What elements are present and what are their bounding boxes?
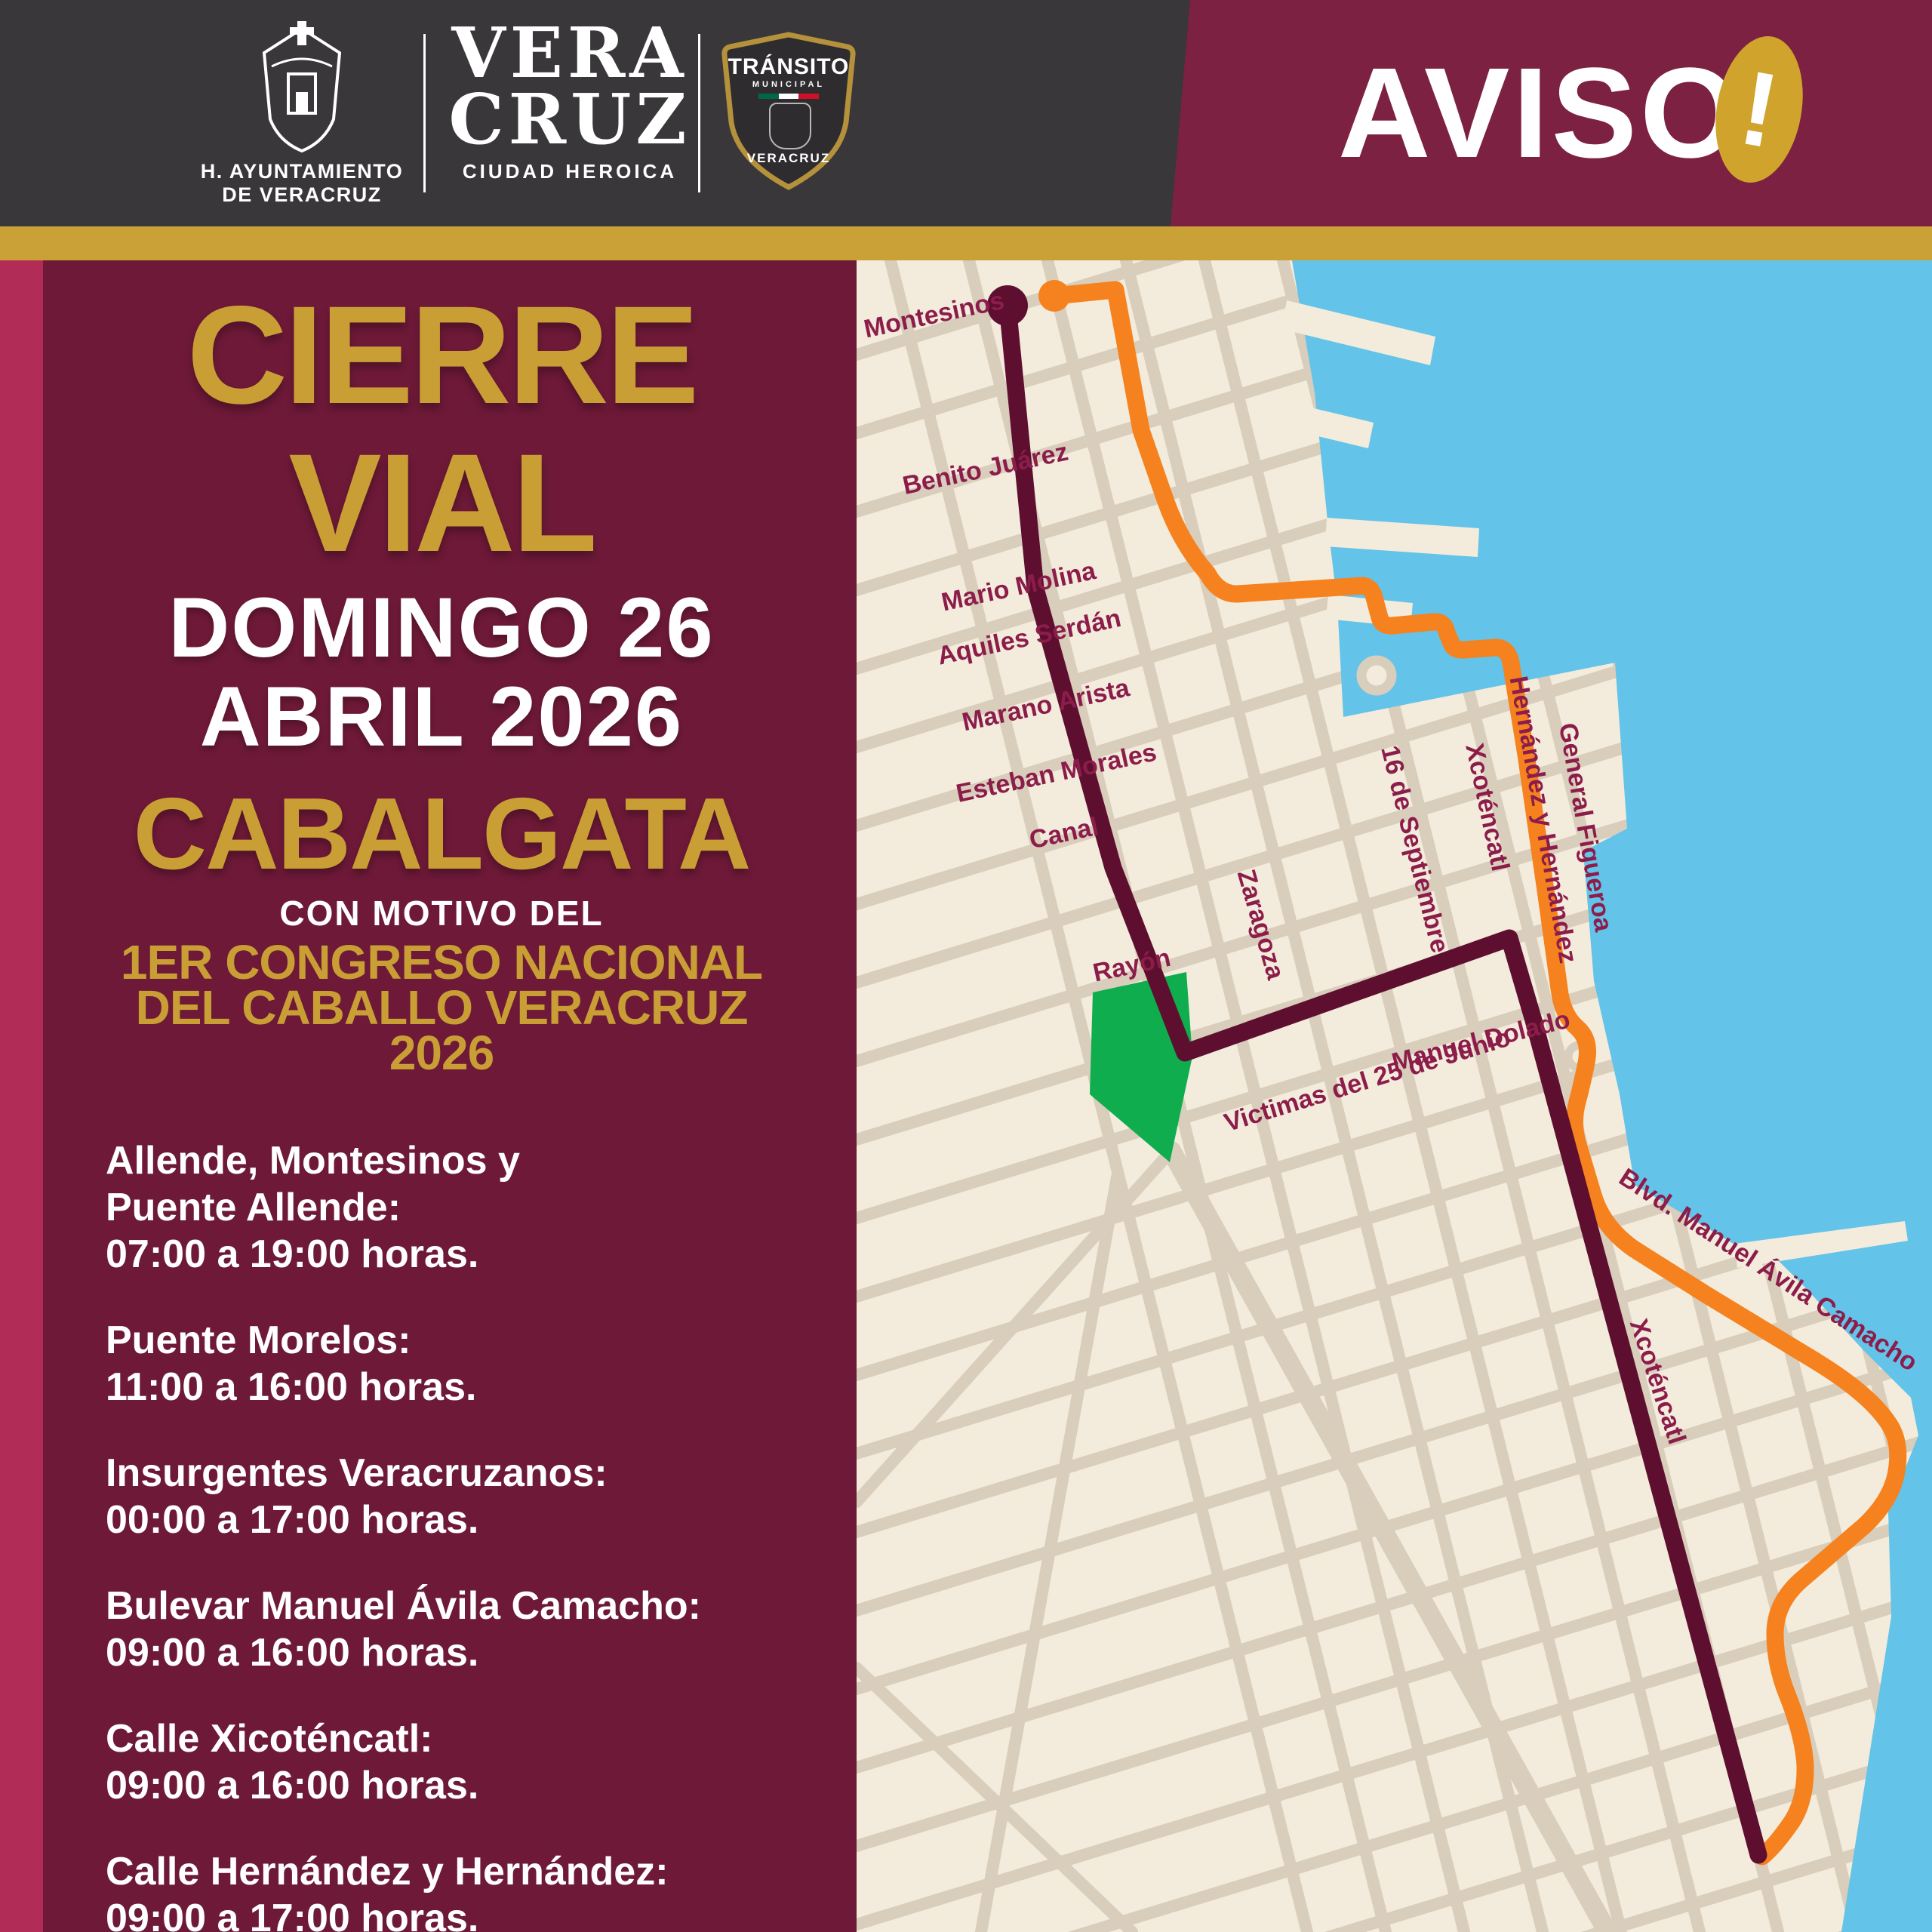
header-divider [698,34,700,192]
transito-crest-icon [769,103,811,149]
closure-item: Calle Hernández y Hernández: 09:00 a 17:… [106,1848,830,1932]
transito-city: VERACRUZ [721,151,857,166]
ayuntamiento-line1: H. AYUNTAMIENTO [174,160,430,183]
title-line2: VIAL [53,429,830,577]
veracruz-logo-subtitle: CIUDAD HEROICA [445,160,694,183]
closure-hours: 09:00 a 17:00 horas. [106,1895,830,1932]
closure-item: Bulevar Manuel Ávila Camacho: 09:00 a 16… [106,1583,830,1676]
closure-street: Insurgentes Veracruzanos: [106,1450,830,1497]
congress-line3: 2026 [53,1030,830,1075]
map-canvas: Montesinos Benito Juárez Mario Molina Aq… [857,260,1932,1932]
gold-divider-bar [0,226,1932,260]
street-label: Benito Juárez [900,437,1071,500]
event-motive: CON MOTIVO DEL [53,893,830,934]
street-label: Esteban Morales [954,738,1159,808]
veracruz-logo-line2: CRUZ [445,86,694,152]
veracruz-logo-line1: VERA [445,20,694,86]
route-secondary-start-dot [1038,280,1070,312]
aviso-banner: AVISO ! [1207,0,1932,226]
closure-street: Puente Morelos: [106,1317,830,1364]
date-line1: DOMINGO 26 [53,583,830,672]
closure-list: Allende, Montesinos y Puente Allende: 07… [106,1137,830,1932]
ayuntamiento-label: H. AYUNTAMIENTO DE VERACRUZ [174,160,430,207]
panel-edge-strip [0,260,43,1932]
congress-title: 1ER CONGRESO NACIONAL DEL CABALLO VERACR… [53,940,830,1075]
congress-line1: 1ER CONGRESO NACIONAL [53,940,830,985]
page-title: CIERRE VIAL [53,281,830,577]
date-line2: ABRIL 2026 [53,672,830,761]
closure-item: Allende, Montesinos y Puente Allende: 07… [106,1137,830,1278]
road-closure-poster: H. AYUNTAMIENTO DE VERACRUZ VERA CRUZ CI… [0,0,1932,1932]
closure-street: Bulevar Manuel Ávila Camacho: [106,1583,830,1629]
closure-item: Puente Morelos: 11:00 a 16:00 horas. [106,1317,830,1411]
event-date: DOMINGO 26 ABRIL 2026 [53,583,830,761]
transito-shield-icon: TRÁNSITO MUNICIPAL VERACRUZ [721,30,857,192]
event-name: CABALGATA [53,775,830,892]
closure-hours: 11:00 a 16:00 horas. [106,1364,830,1411]
exclamation-mark: ! [1731,46,1787,173]
aviso-label: AVISO [1338,39,1743,187]
mexico-flag-stripe-icon [758,94,819,99]
header-divider [423,34,426,192]
closure-street: Calle Xicoténcatl: [106,1715,830,1762]
closure-street: Allende, Montesinos y Puente Allende: [106,1137,830,1231]
title-line1: CIERRE [53,281,830,429]
transito-title: TRÁNSITO [721,54,857,80]
ayuntamiento-line2: DE VERACRUZ [174,183,430,207]
closure-item: Calle Xicoténcatl: 09:00 a 16:00 horas. [106,1715,830,1809]
closure-hours: 07:00 a 19:00 horas. [106,1231,830,1278]
congress-line2: DEL CABALLO VERACRUZ [53,985,830,1030]
closure-hours: 09:00 a 16:00 horas. [106,1762,830,1809]
closure-street: Calle Hernández y Hernández: [106,1848,830,1895]
header-bar: H. AYUNTAMIENTO DE VERACRUZ VERA CRUZ CI… [0,0,1932,226]
street-label: Canal [1026,812,1100,854]
street-label: Marano Arista [959,673,1133,737]
closure-item: Insurgentes Veracruzanos: 00:00 a 17:00 … [106,1450,830,1543]
street-label: Xcoténcatl [1460,741,1515,874]
ayuntamiento-crest-icon [249,21,355,157]
closure-hours: 09:00 a 16:00 horas. [106,1629,830,1676]
transito-subtitle: MUNICIPAL [721,80,857,89]
info-panel: CIERRE VIAL DOMINGO 26 ABRIL 2026 CABALG… [0,260,857,1932]
route-map: Montesinos Benito Juárez Mario Molina Aq… [857,260,1932,1932]
roundabout [1361,660,1392,691]
veracruz-city-logo: VERA CRUZ CIUDAD HEROICA [445,20,694,183]
closure-hours: 00:00 a 17:00 horas. [106,1497,830,1543]
